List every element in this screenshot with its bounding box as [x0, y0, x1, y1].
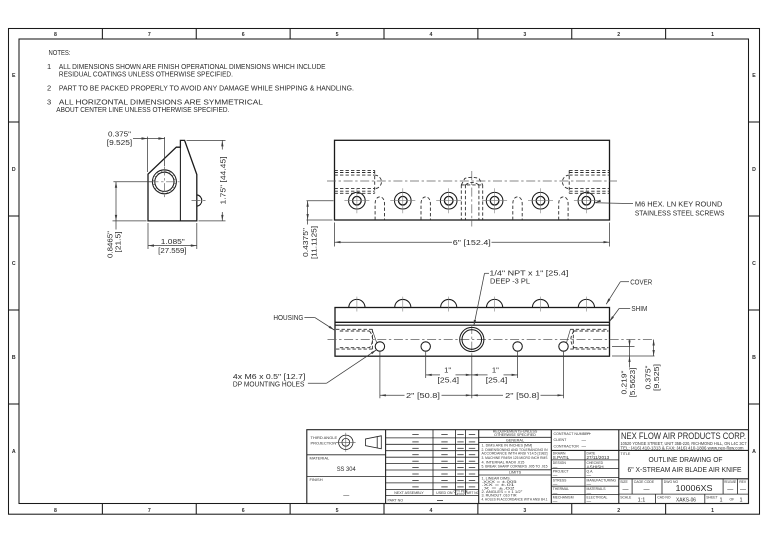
- svg-text:REV: REV: [739, 480, 747, 484]
- svg-text:M6 HEX. LN KEY ROUND: M6 HEX. LN KEY ROUND: [635, 201, 723, 208]
- svg-text:SHEET: SHEET: [706, 495, 717, 499]
- svg-text:[5.5623]: [5.5623]: [630, 367, 637, 397]
- svg-text:8: 8: [54, 32, 57, 38]
- svg-text:SS 304: SS 304: [337, 466, 356, 473]
- svg-text:LIMITS: LIMITS: [509, 471, 522, 475]
- svg-text:SHIM: SHIM: [631, 306, 647, 313]
- svg-text:1/4" NPT x 1" [25.4]: 1/4" NPT x 1" [25.4]: [489, 270, 568, 277]
- svg-text:5. BREAK SHARP CORNERS .005 TO: 5. BREAK SHARP CORNERS .005 TO .015: [482, 465, 548, 469]
- svg-text:B: B: [12, 355, 16, 361]
- svg-text:0.4375": 0.4375": [303, 227, 310, 257]
- svg-text:6: 6: [242, 508, 245, 514]
- svg-text:—: —: [553, 499, 558, 504]
- svg-text:—: —: [587, 499, 592, 504]
- svg-text:THIRD ANGLE: THIRD ANGLE: [311, 435, 338, 440]
- svg-text:B: B: [752, 355, 756, 361]
- svg-text:COVER: COVER: [630, 279, 652, 286]
- svg-text:TITLE: TITLE: [621, 452, 631, 456]
- svg-text:E: E: [752, 73, 756, 79]
- svg-text:2" [50.8]: 2" [50.8]: [406, 393, 440, 400]
- svg-text:1.085": 1.085": [161, 239, 186, 246]
- svg-text:ACCORDANCE WITH ANSI Y14.5 [19: ACCORDANCE WITH ANSI Y14.5 [1982]: [482, 451, 548, 455]
- svg-text:6" [152.4]: 6" [152.4]: [453, 240, 491, 247]
- svg-text:—: —: [587, 473, 592, 478]
- svg-text:7: 7: [148, 508, 151, 514]
- svg-text:NEXT ASSEMBLY: NEXT ASSEMBLY: [394, 491, 424, 495]
- svg-text:CAGE CODE: CAGE CODE: [634, 480, 655, 484]
- svg-text:8: 8: [54, 508, 57, 514]
- svg-text:—: —: [727, 488, 733, 494]
- svg-text:1": 1": [444, 368, 452, 375]
- svg-text:4: 4: [429, 508, 432, 514]
- svg-text:1: 1: [739, 498, 742, 504]
- svg-text:GENERAL: GENERAL: [506, 438, 524, 442]
- svg-text:CLIENT: CLIENT: [554, 438, 568, 442]
- svg-text:2: 2: [617, 32, 620, 38]
- svg-text:7: 7: [148, 32, 151, 38]
- svg-text:—: —: [343, 493, 349, 499]
- svg-text:XAKS-06: XAKS-06: [676, 497, 696, 503]
- svg-text:SCALE: SCALE: [620, 495, 632, 499]
- svg-text:—: —: [623, 488, 629, 494]
- svg-text:6" X-STREAM AIR BLADE AIR KNIF: 6" X-STREAM AIR BLADE AIR KNIFE: [628, 465, 742, 474]
- svg-text:RELEASE: RELEASE: [724, 480, 736, 484]
- svg-text:DP MOUNTING HOLES: DP MOUNTING HOLES: [233, 381, 305, 388]
- svg-text:PART TO BE PACKED PROPERLY TO: PART TO BE PACKED PROPERLY TO AVOID ANY …: [59, 84, 354, 93]
- svg-text:USED ON: USED ON: [436, 491, 453, 495]
- svg-text:[25.4]: [25.4]: [438, 377, 460, 384]
- svg-text:FINISH: FINISH: [310, 477, 323, 482]
- svg-text:3: 3: [47, 98, 51, 107]
- svg-text:D: D: [12, 167, 16, 173]
- svg-text:—: —: [740, 488, 746, 494]
- svg-text:—: —: [582, 444, 587, 449]
- svg-text:CONTRACT NUMBER: CONTRACT NUMBER: [554, 432, 591, 436]
- svg-text:OF: OF: [730, 498, 735, 502]
- svg-text:1.75" [44.45]: 1.75" [44.45]: [221, 156, 228, 204]
- svg-text:E: E: [12, 73, 16, 79]
- svg-text:C: C: [12, 261, 16, 267]
- svg-text:STAINLESS STEEL SCREWS: STAINLESS STEEL SCREWS: [635, 210, 725, 217]
- svg-text:SIZE: SIZE: [620, 480, 628, 484]
- svg-text:0.219": 0.219": [622, 370, 629, 395]
- svg-text:3: 3: [523, 508, 526, 514]
- svg-text:C: C: [752, 261, 756, 267]
- svg-text:PART NO: PART NO: [465, 491, 480, 495]
- svg-text:[9.525]: [9.525]: [654, 364, 661, 391]
- svg-text:4x M6 x 0.5" [12.7]: 4x M6 x 0.5" [12.7]: [233, 374, 306, 381]
- svg-text:1": 1": [492, 368, 500, 375]
- svg-text:[21.5]: [21.5]: [115, 231, 122, 252]
- svg-text:2" [50.8]: 2" [50.8]: [505, 393, 539, 400]
- svg-text:27/11/2013: 27/11/2013: [587, 455, 610, 460]
- svg-text:ABOUT CENTER LINE UNLESS OTHER: ABOUT CENTER LINE UNLESS OTHERWISE SPECI…: [56, 105, 229, 114]
- svg-text:PROJECTION: PROJECTION: [311, 441, 337, 446]
- svg-text:2: 2: [47, 84, 51, 93]
- svg-text:TEL: (416) 410-1313 & FAX: (41: TEL: (416) 410-1313 & FAX: (416) 410-180…: [621, 446, 745, 451]
- svg-text:—: —: [587, 431, 592, 436]
- svg-text:[9.525]: [9.525]: [107, 140, 133, 147]
- svg-text:5: 5: [336, 32, 339, 38]
- svg-text:[25.4]: [25.4]: [486, 377, 508, 384]
- svg-text:—: —: [553, 473, 558, 478]
- svg-text:2: 2: [617, 508, 620, 514]
- svg-text:6: 6: [242, 32, 245, 38]
- svg-text:1:1: 1:1: [638, 498, 646, 504]
- svg-text:1: 1: [47, 62, 51, 71]
- svg-text:—: —: [582, 437, 587, 442]
- svg-text:CAD NO: CAD NO: [657, 495, 671, 499]
- svg-text:D: D: [752, 167, 756, 173]
- svg-text:0.375": 0.375": [108, 131, 132, 138]
- svg-text:A: A: [752, 449, 756, 455]
- svg-text:DEEP -3 PL: DEEP -3 PL: [490, 279, 530, 286]
- svg-text:1: 1: [719, 498, 722, 504]
- svg-text:RESIDUAL COATINGS UNLESS OTHER: RESIDUAL COATINGS UNLESS OTHERWISE SPECI…: [59, 70, 233, 79]
- svg-text:OTHERWISE SPECIFIED: OTHERWISE SPECIFIED: [494, 433, 536, 437]
- svg-text:1: 1: [711, 32, 714, 38]
- svg-text:1: 1: [711, 508, 714, 514]
- svg-text:OUTLINE DRAWING OF: OUTLINE DRAWING OF: [649, 455, 723, 464]
- svg-text:HOUSING: HOUSING: [273, 315, 303, 322]
- svg-text:NEX FLOW AIR PRODUCTS CORP.: NEX FLOW AIR PRODUCTS CORP.: [621, 431, 746, 441]
- svg-text:A: A: [12, 449, 16, 455]
- svg-text:4. HOLES IN ACCORDANCE WITH AN: 4. HOLES IN ACCORDANCE WITH ANSI B4.1: [482, 498, 548, 502]
- svg-text:MATERIAL: MATERIAL: [310, 456, 330, 461]
- svg-text:—: —: [644, 488, 650, 494]
- svg-text:4: 4: [429, 32, 432, 38]
- svg-text:S.PATIL: S.PATIL: [553, 455, 570, 460]
- svg-text:10006XS: 10006XS: [676, 483, 713, 493]
- svg-text:0.8465": 0.8465": [108, 230, 115, 258]
- svg-text:[11.1125]: [11.1125]: [311, 226, 318, 259]
- svg-text:5: 5: [336, 508, 339, 514]
- svg-text:NOTES:: NOTES:: [49, 48, 71, 57]
- svg-text:0.375": 0.375": [646, 365, 653, 390]
- svg-text:[27.559]: [27.559]: [158, 248, 187, 255]
- svg-text:CONTRACTOR: CONTRACTOR: [554, 445, 580, 449]
- svg-text:3: 3: [523, 32, 526, 38]
- svg-text:PART NO: PART NO: [388, 499, 404, 503]
